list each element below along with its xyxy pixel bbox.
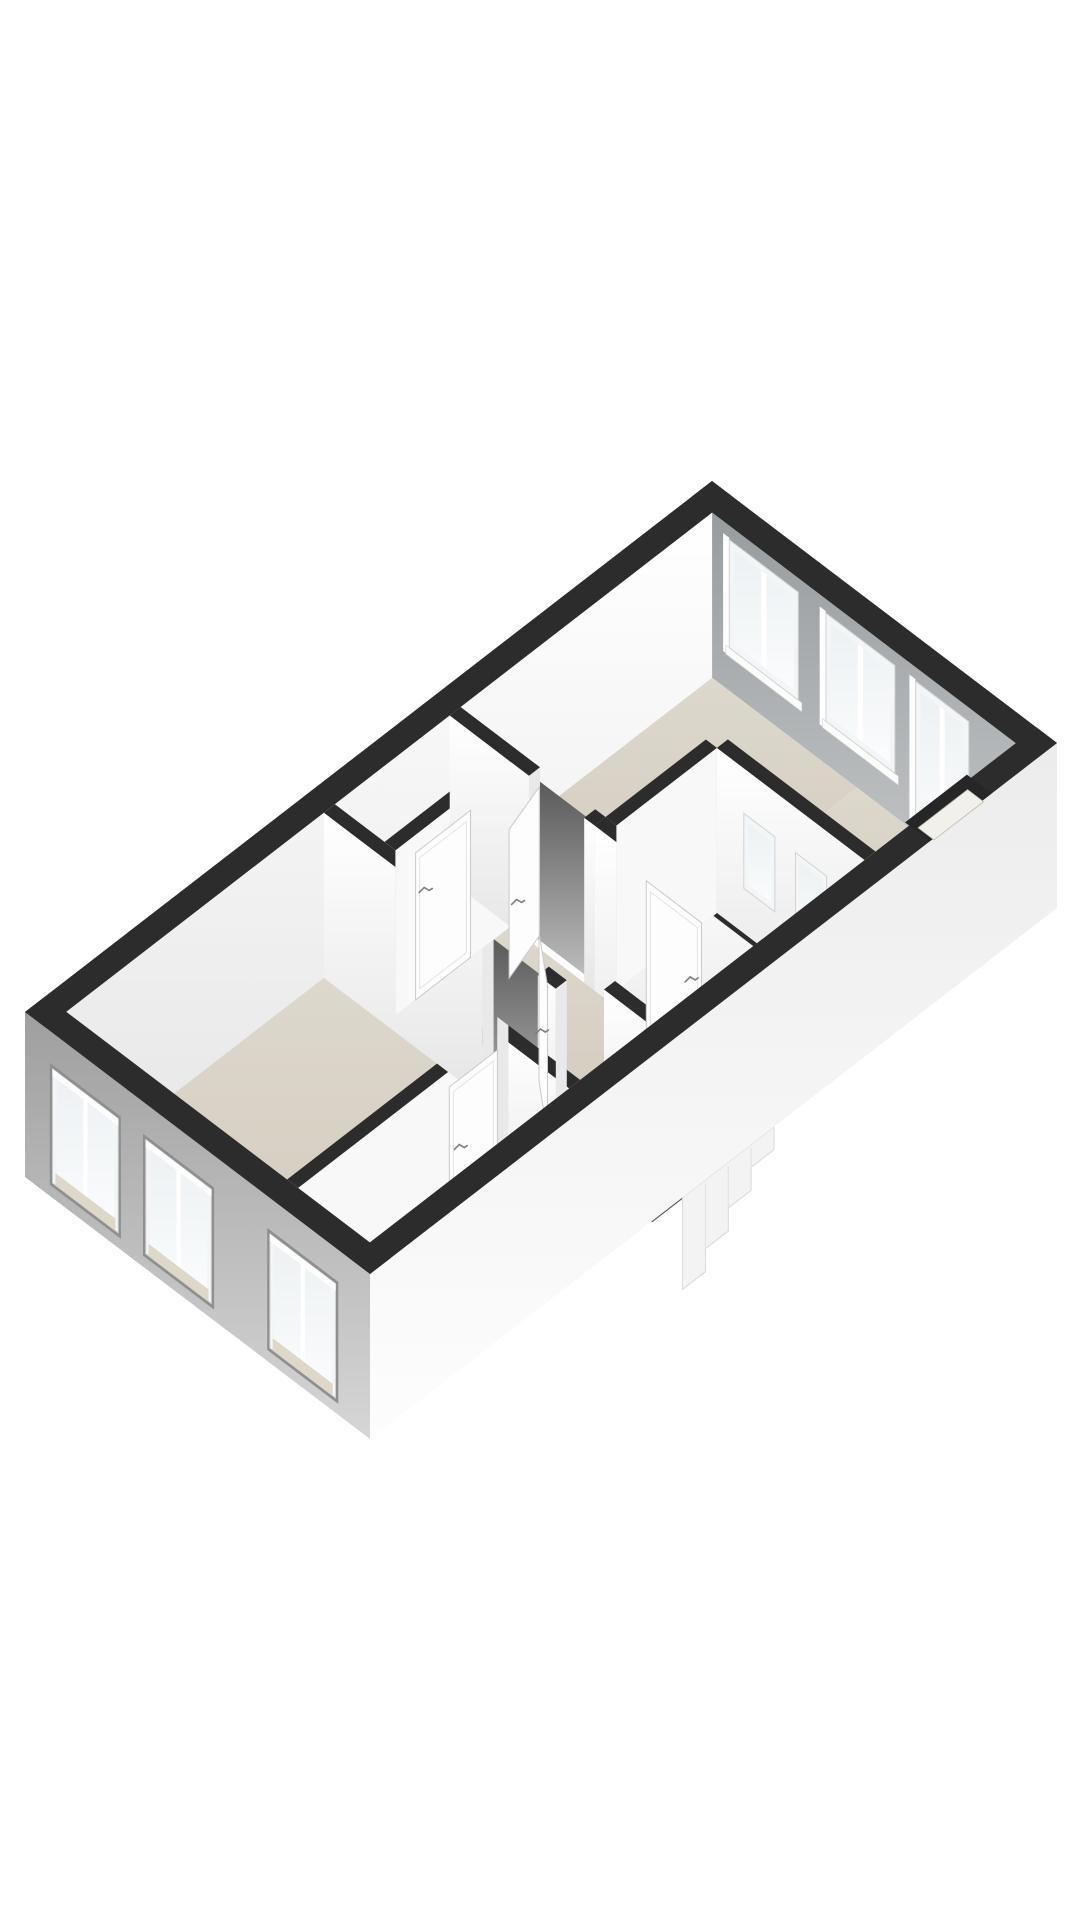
window-mullion <box>83 1098 87 1203</box>
window-mullion <box>177 1169 181 1274</box>
window-mullion <box>301 1263 305 1368</box>
wall-face <box>584 818 594 991</box>
floor-plan-3d <box>0 0 1080 1920</box>
window-reveal <box>723 533 729 656</box>
window-reveal <box>909 675 915 828</box>
window-reveal <box>820 606 826 729</box>
window-mullion <box>858 645 863 743</box>
window-mullion <box>761 571 766 669</box>
canvas <box>0 0 1080 1920</box>
